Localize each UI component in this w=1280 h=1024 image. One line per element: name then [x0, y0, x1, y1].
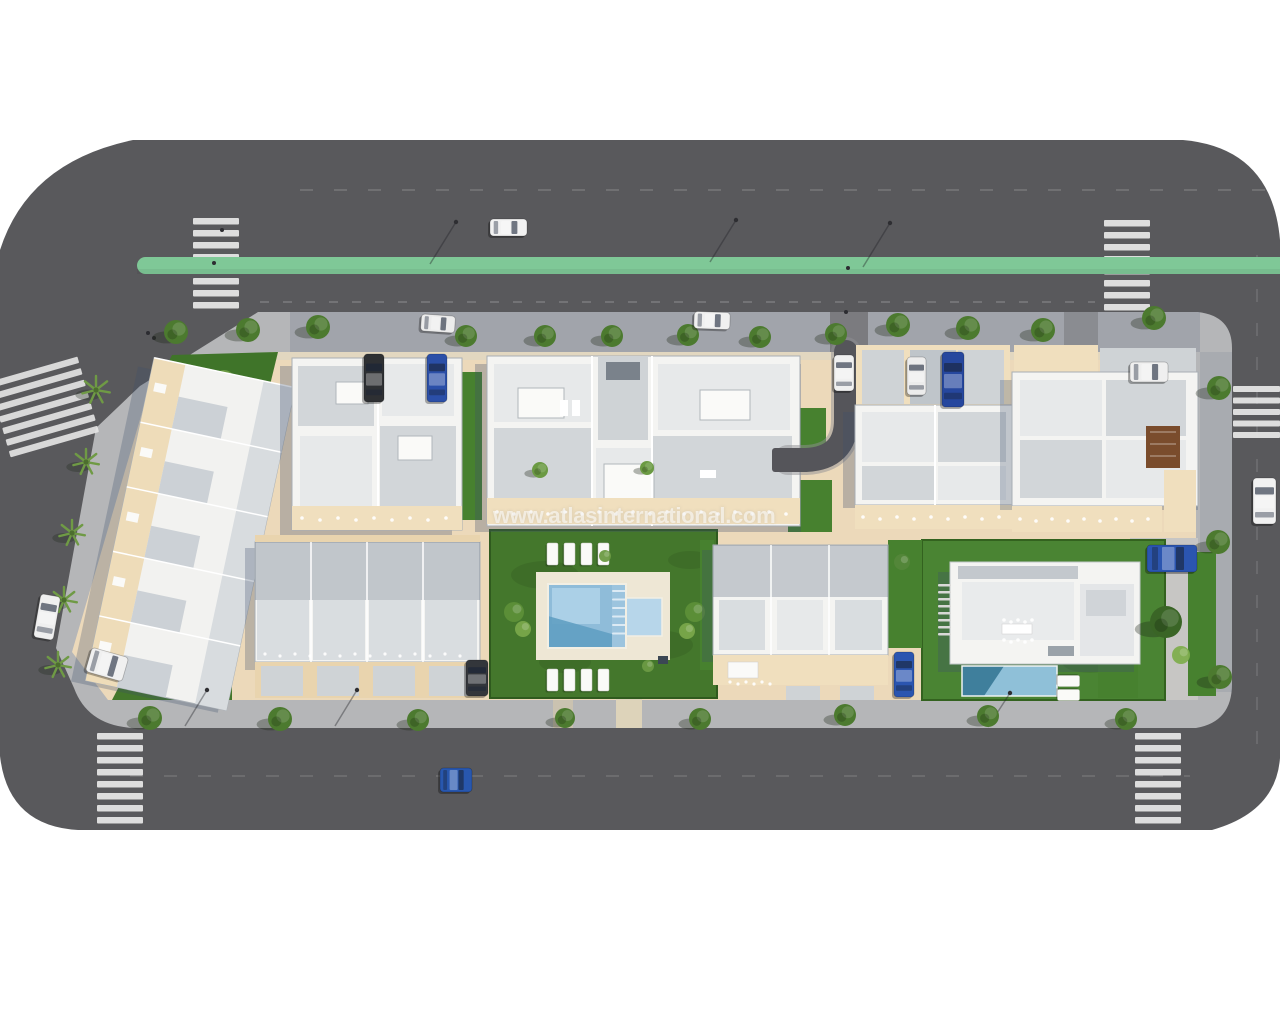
car-white-parked — [692, 311, 731, 331]
rect — [840, 686, 874, 700]
rect — [313, 600, 365, 660]
rect — [719, 600, 765, 650]
garden-path — [616, 696, 642, 728]
rect — [560, 400, 568, 416]
car-white-driving — [488, 219, 527, 238]
rect — [938, 466, 1006, 500]
rect — [700, 390, 750, 420]
sun-lounger — [563, 669, 576, 693]
rect — [835, 600, 882, 650]
rect — [373, 666, 415, 696]
pedestrian — [212, 261, 216, 265]
bush — [515, 621, 531, 637]
car-blue-sports — [1145, 545, 1197, 574]
sun-lounger — [546, 543, 559, 567]
bush — [642, 660, 654, 672]
rect — [317, 666, 359, 696]
bush — [894, 554, 910, 570]
rect — [958, 350, 1004, 404]
rect — [1020, 380, 1102, 436]
car-blue-driveway — [425, 354, 447, 404]
car-white-parked — [418, 314, 455, 335]
rect — [700, 470, 716, 478]
pedestrian — [846, 266, 850, 270]
parking-pad — [772, 448, 798, 472]
rect — [786, 686, 820, 700]
sun-lounger — [597, 669, 610, 693]
sun-lounger — [1056, 674, 1080, 687]
car-white-entering — [832, 355, 854, 393]
rect — [938, 412, 1006, 462]
rect — [518, 388, 564, 418]
rect — [398, 436, 432, 460]
bush — [504, 602, 524, 622]
car-dark-driveway — [362, 354, 384, 404]
terrace — [292, 506, 462, 530]
rect — [369, 600, 421, 660]
rect — [572, 400, 580, 416]
rect — [862, 350, 904, 404]
pedestrian — [146, 331, 150, 335]
rect — [606, 362, 640, 380]
terrace — [855, 505, 1012, 529]
pedestrian — [844, 310, 848, 314]
patio-table — [728, 662, 758, 678]
car-blue-driving — [438, 768, 472, 794]
bike-lane — [137, 257, 1280, 274]
utility-box — [658, 656, 668, 664]
car-white-driveway — [905, 357, 926, 397]
car-blue-driveway — [940, 352, 964, 409]
rect — [1020, 440, 1102, 498]
scene-svg — [0, 0, 1280, 1024]
villa-wing-panel — [1086, 590, 1126, 616]
pool-highlight — [552, 588, 600, 624]
rect — [862, 412, 934, 462]
rect — [777, 600, 823, 650]
car-white-parked — [1128, 362, 1168, 384]
bush — [599, 550, 611, 562]
terrace — [1164, 470, 1196, 532]
outdoor-table — [1002, 624, 1032, 634]
sun-lounger — [563, 543, 576, 567]
sun-lounger — [546, 669, 559, 693]
rect — [257, 600, 309, 660]
sun-lounger — [580, 669, 593, 693]
rect — [261, 666, 303, 696]
pedestrian — [220, 228, 224, 232]
terrace — [1012, 506, 1162, 532]
terrace — [487, 498, 800, 524]
kiddie-pool — [626, 598, 662, 636]
rect — [255, 535, 480, 542]
aerial-site-plan-render: www.atlasinternational.com — [0, 0, 1280, 1024]
rect — [862, 466, 934, 500]
car-white-driving — [1251, 478, 1276, 526]
roof-unit — [1048, 646, 1074, 656]
rect — [713, 545, 888, 597]
bike-lane-shade — [137, 269, 1280, 274]
sun-lounger — [580, 543, 593, 567]
rect — [425, 600, 477, 660]
car-dark-driveway — [464, 660, 488, 698]
car-blue-driveway — [892, 652, 914, 699]
bush — [1172, 646, 1190, 664]
bush — [679, 623, 695, 639]
villa-roof-band — [958, 566, 1078, 579]
sun-lounger — [1056, 688, 1080, 701]
